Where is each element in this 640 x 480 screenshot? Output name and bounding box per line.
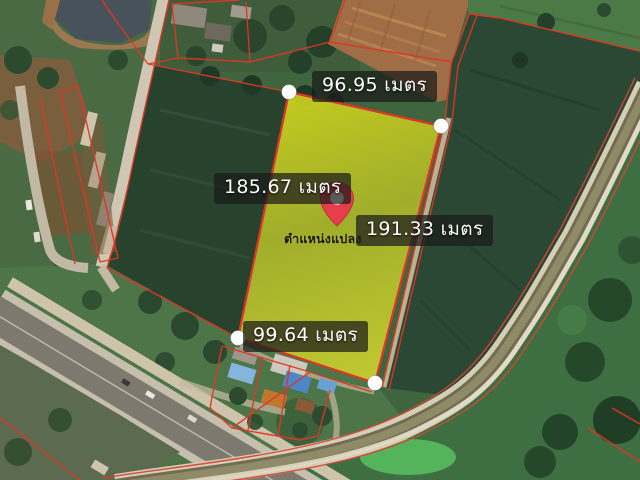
measurement-label-bottom: 99.64 เมตร	[243, 321, 368, 352]
measurement-label-top: 96.95 เมตร	[312, 71, 437, 102]
measurement-label-right: 191.33 เมตร	[356, 215, 493, 246]
north-homestead-area	[160, 0, 360, 74]
corner-marker-top-left[interactable]	[282, 85, 297, 100]
land-plot-satellite-map: 96.95 เมตร 185.67 เมตร 191.33 เมตร 99.64…	[0, 0, 640, 480]
measurement-label-left: 185.67 เมตร	[214, 173, 351, 204]
corner-marker-top-right[interactable]	[434, 119, 449, 134]
pin-caption: ตำแหน่งแปลง	[284, 229, 362, 249]
corner-marker-bottom-right[interactable]	[368, 376, 383, 391]
